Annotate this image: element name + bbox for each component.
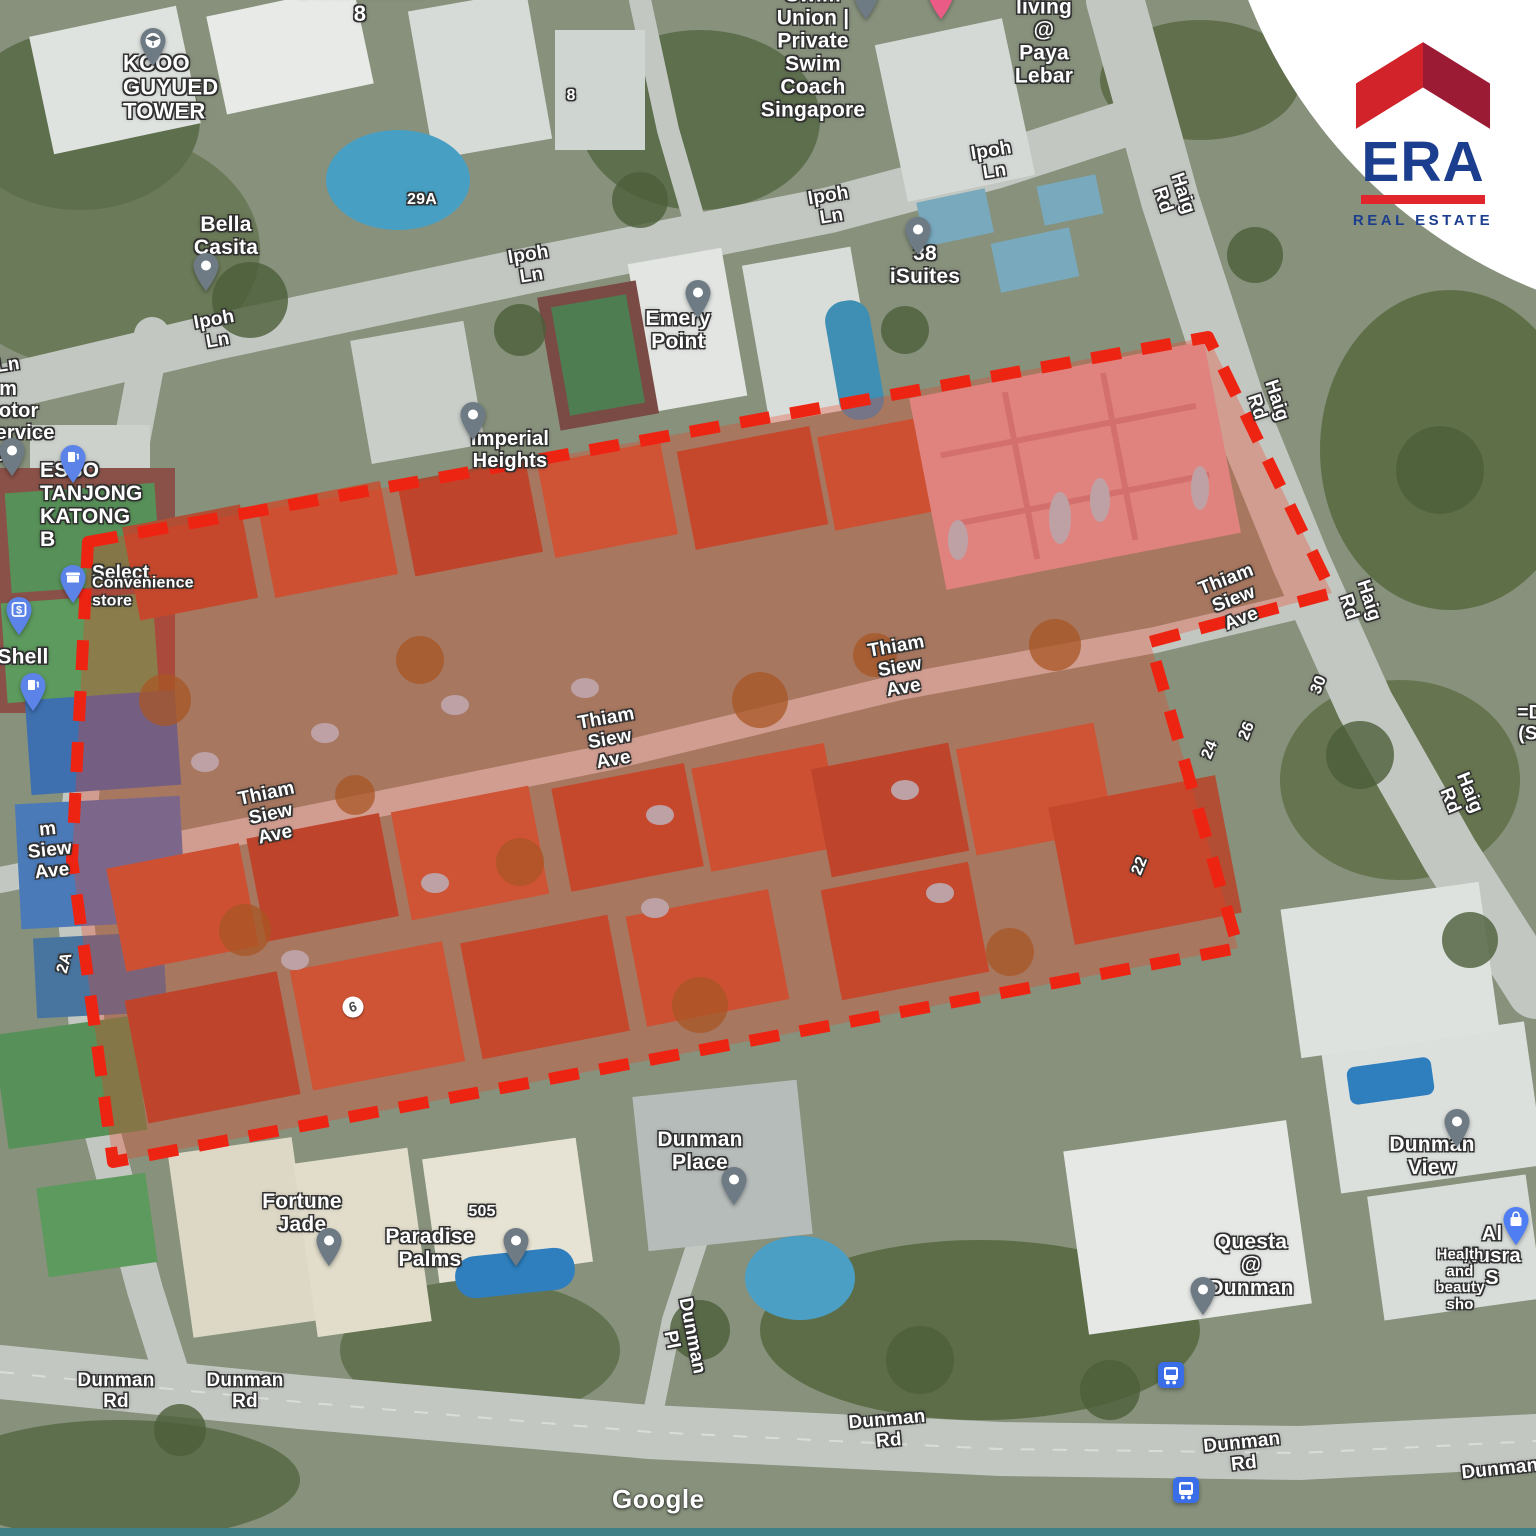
location-pin-38-isuites — [904, 216, 932, 261]
location-pin-questa-dunman — [1189, 1276, 1217, 1321]
google-watermark: Google — [612, 1484, 705, 1515]
svg-text:$: $ — [16, 605, 22, 617]
location-pin-fortune-jade — [315, 1227, 343, 1272]
coliving-pin-co-living-paya-lebar — [927, 0, 955, 25]
site-boundary-polygon — [72, 337, 1332, 1162]
satellite-map-flyer: Ipoh LnIpoh LnIpoh LnIpoh LnHaig RdHaig … — [0, 0, 1536, 1536]
era-logo: ERA REAL ESTATE — [1352, 40, 1494, 229]
fuel-pin-shell — [19, 672, 47, 717]
atm-pin-atm: $ — [5, 596, 33, 641]
location-pin-dunman-place — [720, 1166, 748, 1211]
store-pin-select-convenience — [59, 564, 87, 609]
site-boundary-overlay — [0, 0, 1536, 1536]
era-roof-icon — [1354, 40, 1492, 131]
location-pin-imperial-heights — [459, 401, 487, 446]
shopping-pin-al-nusra — [1502, 1206, 1530, 1251]
location-pin-dunman-view — [1443, 1108, 1471, 1153]
location-pin-motor-service — [0, 437, 26, 482]
graduation-pin-kcoo-guyued-tower — [139, 27, 167, 72]
era-wordmark: ERA — [1352, 134, 1494, 191]
bus-stop-icon-bus-stop-2 — [1173, 1477, 1199, 1508]
location-pin-emery-point — [684, 279, 712, 324]
location-pin-swim-union — [852, 0, 880, 25]
location-pin-paradise-palms — [502, 1227, 530, 1272]
era-tagline: REAL ESTATE — [1352, 212, 1494, 229]
fuel-pin-esso-tanjong-katong — [59, 444, 87, 489]
bus-stop-icon-bus-stop-1 — [1158, 1362, 1184, 1393]
location-pin-bella-casita — [192, 252, 220, 297]
era-logo-bar — [1361, 195, 1485, 204]
